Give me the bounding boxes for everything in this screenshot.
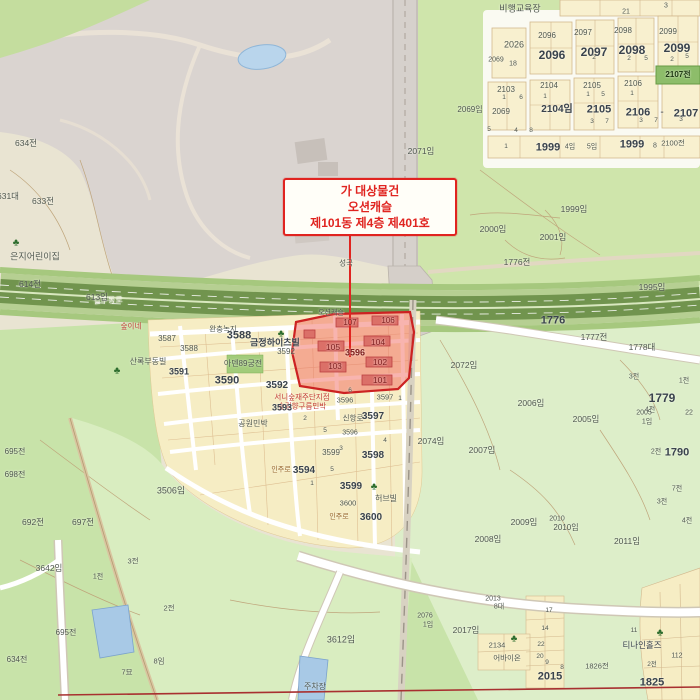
park-building	[318, 162, 338, 176]
annotation-line-3: 제101동 제4층 제401호	[310, 216, 430, 231]
park-building	[295, 138, 328, 164]
mini-park	[227, 355, 263, 373]
map-base-art	[0, 0, 700, 700]
annotation-line-2: 오션캐슬	[348, 200, 392, 215]
annotation-line-1: 가 대상물건	[341, 184, 400, 199]
parcel-grid-topright	[483, 0, 700, 168]
subject-annotation-box: 가 대상물건 오션캐슬 제101동 제4층 제401호	[283, 178, 457, 236]
highlight-parcel	[292, 312, 414, 393]
pond-bottom	[298, 656, 328, 700]
cadastral-map-canvas[interactable]: 비행교육장21320962096209720972098209820992099…	[0, 0, 700, 700]
green-parcel-2107	[656, 66, 700, 84]
pond-left	[92, 605, 134, 658]
